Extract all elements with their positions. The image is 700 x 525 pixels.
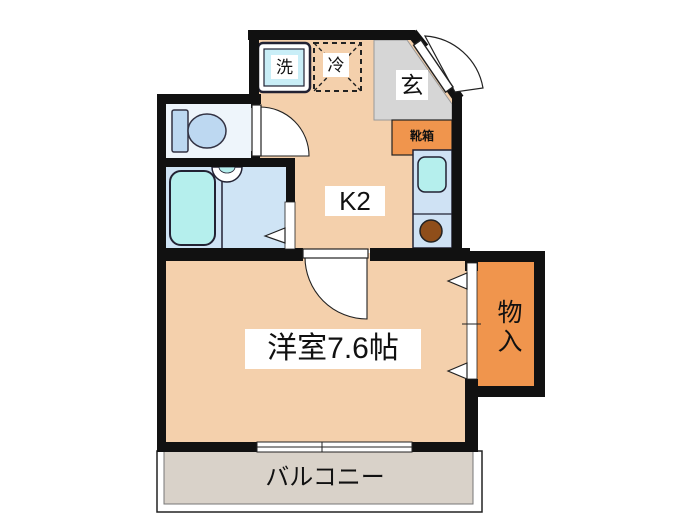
wall-kitchen-left [249, 30, 259, 104]
washer-label: 洗 [271, 55, 298, 79]
wall-left [157, 94, 166, 452]
fridge-label: 冷 [323, 53, 349, 77]
burner-icon [420, 220, 442, 242]
bathtub-icon [170, 171, 215, 245]
wall-storage-right [534, 251, 545, 397]
shoe-box-label: 靴箱 [392, 128, 452, 144]
toilet-door-icon [252, 105, 261, 156]
wall-room-bottom-left [157, 442, 257, 452]
wall-toilet-top [157, 94, 261, 104]
storage-sliding-door [467, 263, 477, 379]
main-room-label: 洋室7.6帖 [245, 329, 421, 369]
wall-bath-right [286, 158, 295, 204]
bathroom-doorway [285, 202, 295, 249]
wall-room-top-right [370, 248, 470, 261]
window-icon [257, 442, 412, 452]
floor-plan: 洗 冷 玄 靴箱 K2 洋室7.6帖 物入 バルコニー [0, 0, 700, 525]
wall-room-top-left [157, 248, 303, 261]
balcony-label: バルコニー [230, 464, 420, 492]
toilet-bowl-icon [188, 114, 226, 148]
kitchen-label: K2 [325, 186, 385, 216]
wall-bath-top [157, 158, 295, 167]
wall-kitchen-top [248, 30, 415, 40]
toilet-tank-icon [172, 110, 188, 152]
floor-plan-drawing [0, 0, 700, 525]
entrance-label: 玄 [396, 70, 428, 100]
wall-room-bottom-right [412, 442, 478, 452]
room-door-icon [303, 249, 368, 258]
storage-label: 物入 [492, 288, 520, 368]
kitchen-sink-icon [418, 157, 446, 192]
wall-kitchen-right [452, 96, 462, 253]
wall-room-right-lower [465, 379, 478, 452]
